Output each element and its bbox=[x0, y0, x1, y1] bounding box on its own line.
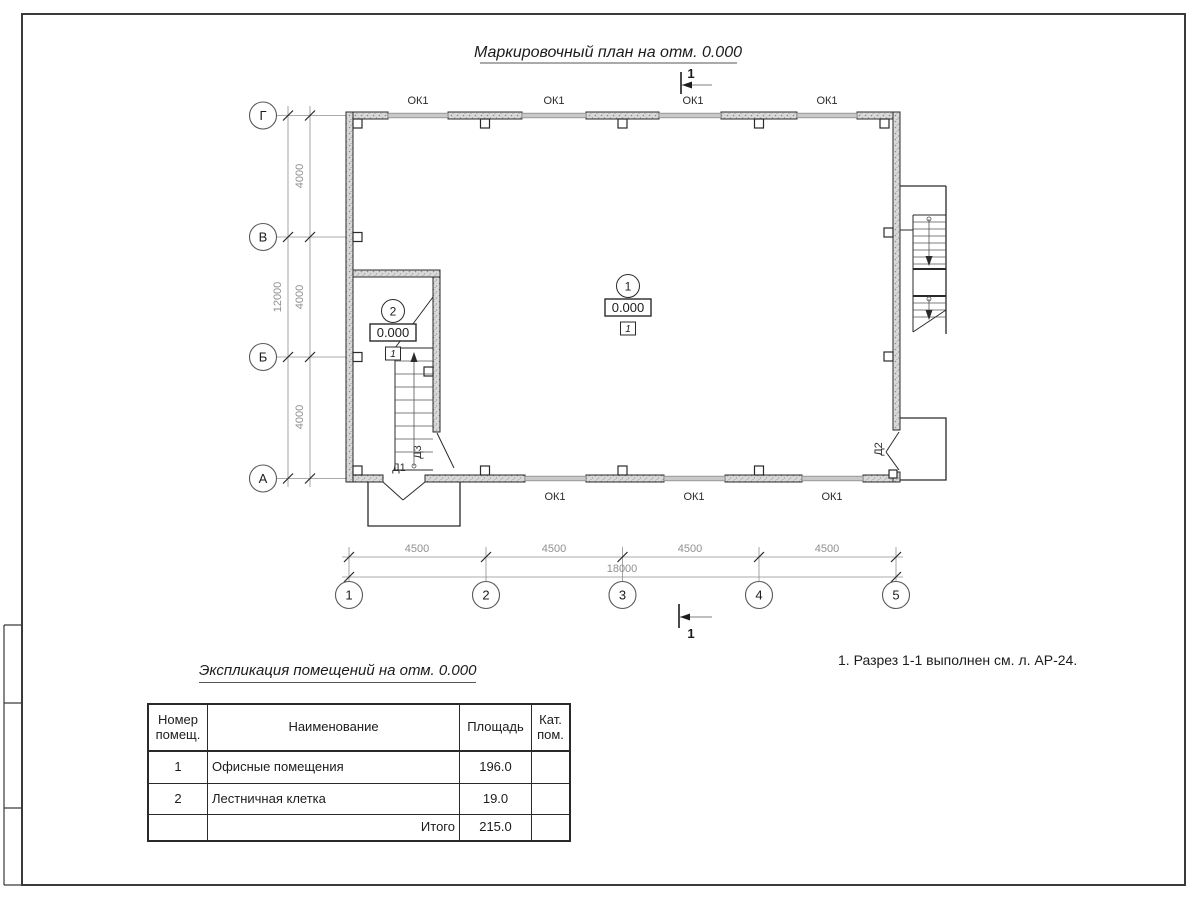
total-area: 215.0 bbox=[460, 815, 532, 842]
cell-room-area: 19.0 bbox=[460, 784, 532, 815]
room-schedule-title: Экспликация помещений на отм. 0.000 bbox=[199, 662, 476, 683]
section-arrow bbox=[680, 614, 690, 621]
dim-18000: 18000 bbox=[607, 563, 638, 575]
dim-4000: 4000 bbox=[294, 405, 306, 429]
cell-empty bbox=[532, 815, 571, 842]
header-area: Площадь bbox=[460, 704, 532, 751]
horizontal-dimensions: 4500 4500 4500 4500 18000 1 2 3 4 5 bbox=[336, 543, 910, 609]
door-d2: Д2 bbox=[873, 432, 899, 470]
table-total-row: Итого 215.0 bbox=[148, 815, 570, 842]
cell-room-category bbox=[532, 784, 571, 815]
cell-room-category bbox=[532, 751, 571, 784]
room-number: 1 bbox=[625, 280, 632, 294]
dim-4500: 4500 bbox=[815, 543, 839, 555]
header-category: Кат. пом. bbox=[532, 704, 571, 751]
drawing-sheet: Маркировочный план на отм. 0.000 Г В Б А… bbox=[0, 0, 1200, 900]
table-row: 2 Лестничная клетка 19.0 bbox=[148, 784, 570, 815]
stair-flight-interior bbox=[395, 297, 433, 470]
stair-down-arrow bbox=[926, 310, 933, 320]
stair-up-arrow bbox=[411, 352, 418, 362]
room-finish-type: 1 bbox=[625, 324, 631, 335]
cell-empty bbox=[148, 815, 208, 842]
total-label: Итого bbox=[208, 815, 460, 842]
header-room-number: Номер помещ. bbox=[148, 704, 208, 751]
dim-4500: 4500 bbox=[678, 543, 702, 555]
window-label-ok1: ОК1 bbox=[544, 491, 565, 503]
door-d1: Д1 bbox=[383, 462, 425, 500]
axis-label: 3 bbox=[619, 588, 626, 603]
dim-4500: 4500 bbox=[405, 543, 429, 555]
window-label-ok1: ОК1 bbox=[816, 95, 837, 107]
exterior-walls bbox=[346, 112, 900, 482]
stair-down-arrow bbox=[926, 256, 933, 266]
cell-room-number: 2 bbox=[148, 784, 208, 815]
cell-room-number: 1 bbox=[148, 751, 208, 784]
section-number: 1 bbox=[687, 66, 694, 81]
axis-label: А bbox=[259, 471, 268, 486]
table-header-row: Номер помещ. Наименование Площадь Кат. п… bbox=[148, 704, 570, 751]
dim-4500: 4500 bbox=[542, 543, 566, 555]
room-marker-2: 2 0.000 1 bbox=[370, 300, 416, 361]
section-arrow bbox=[682, 82, 692, 89]
axis-label: Б bbox=[259, 350, 268, 365]
window-label-ok1: ОК1 bbox=[682, 95, 703, 107]
room-marker-1: 1 0.000 1 bbox=[605, 275, 651, 336]
axis-label: 5 bbox=[892, 588, 899, 603]
entrance-porch-left bbox=[368, 482, 460, 526]
cell-room-name: Офисные помещения bbox=[208, 751, 460, 784]
room-elevation: 0.000 bbox=[377, 325, 410, 340]
room-finish-type: 1 bbox=[390, 349, 396, 360]
page-title: Маркировочный план на отм. 0.000 bbox=[474, 44, 742, 61]
axis-label: 4 bbox=[755, 588, 762, 603]
door-label-d2: Д2 bbox=[873, 442, 885, 456]
dim-12000: 12000 bbox=[272, 282, 284, 313]
door-d3: Д3 bbox=[412, 433, 454, 468]
header-name: Наименование bbox=[208, 704, 460, 751]
section-mark-top: 1 bbox=[681, 66, 712, 94]
door-label-d1: Д1 bbox=[392, 462, 406, 474]
room-schedule-table: Номер помещ. Наименование Площадь Кат. п… bbox=[147, 703, 571, 842]
section-mark-bottom: 1 bbox=[679, 604, 712, 641]
table-row: 1 Офисные помещения 196.0 bbox=[148, 751, 570, 784]
entrance-porch-right bbox=[900, 418, 946, 480]
dim-4000: 4000 bbox=[294, 164, 306, 188]
axis-label: Г bbox=[259, 108, 266, 123]
axis-label: В bbox=[259, 230, 268, 245]
drawing-title: Маркировочный план на отм. 0.000 bbox=[474, 44, 742, 63]
drawing-note: 1. Разрез 1-1 выполнен см. л. АР-24. bbox=[838, 652, 1077, 668]
section-number: 1 bbox=[687, 626, 694, 641]
stair-flight-exterior bbox=[900, 186, 946, 334]
axis-label: 1 bbox=[345, 588, 352, 603]
window-label-ok1: ОК1 bbox=[821, 491, 842, 503]
room-elevation: 0.000 bbox=[612, 300, 645, 315]
axis-label: 2 bbox=[482, 588, 489, 603]
window-label-ok1: ОК1 bbox=[683, 491, 704, 503]
room-number: 2 bbox=[390, 305, 397, 319]
window-label-ok1: ОК1 bbox=[543, 95, 564, 107]
cell-room-name: Лестничная клетка bbox=[208, 784, 460, 815]
window-label-ok1: ОК1 bbox=[407, 95, 428, 107]
vertical-dimensions: 4000 4000 4000 12000 bbox=[272, 106, 315, 487]
dim-4000: 4000 bbox=[294, 285, 306, 309]
cell-room-area: 196.0 bbox=[460, 751, 532, 784]
